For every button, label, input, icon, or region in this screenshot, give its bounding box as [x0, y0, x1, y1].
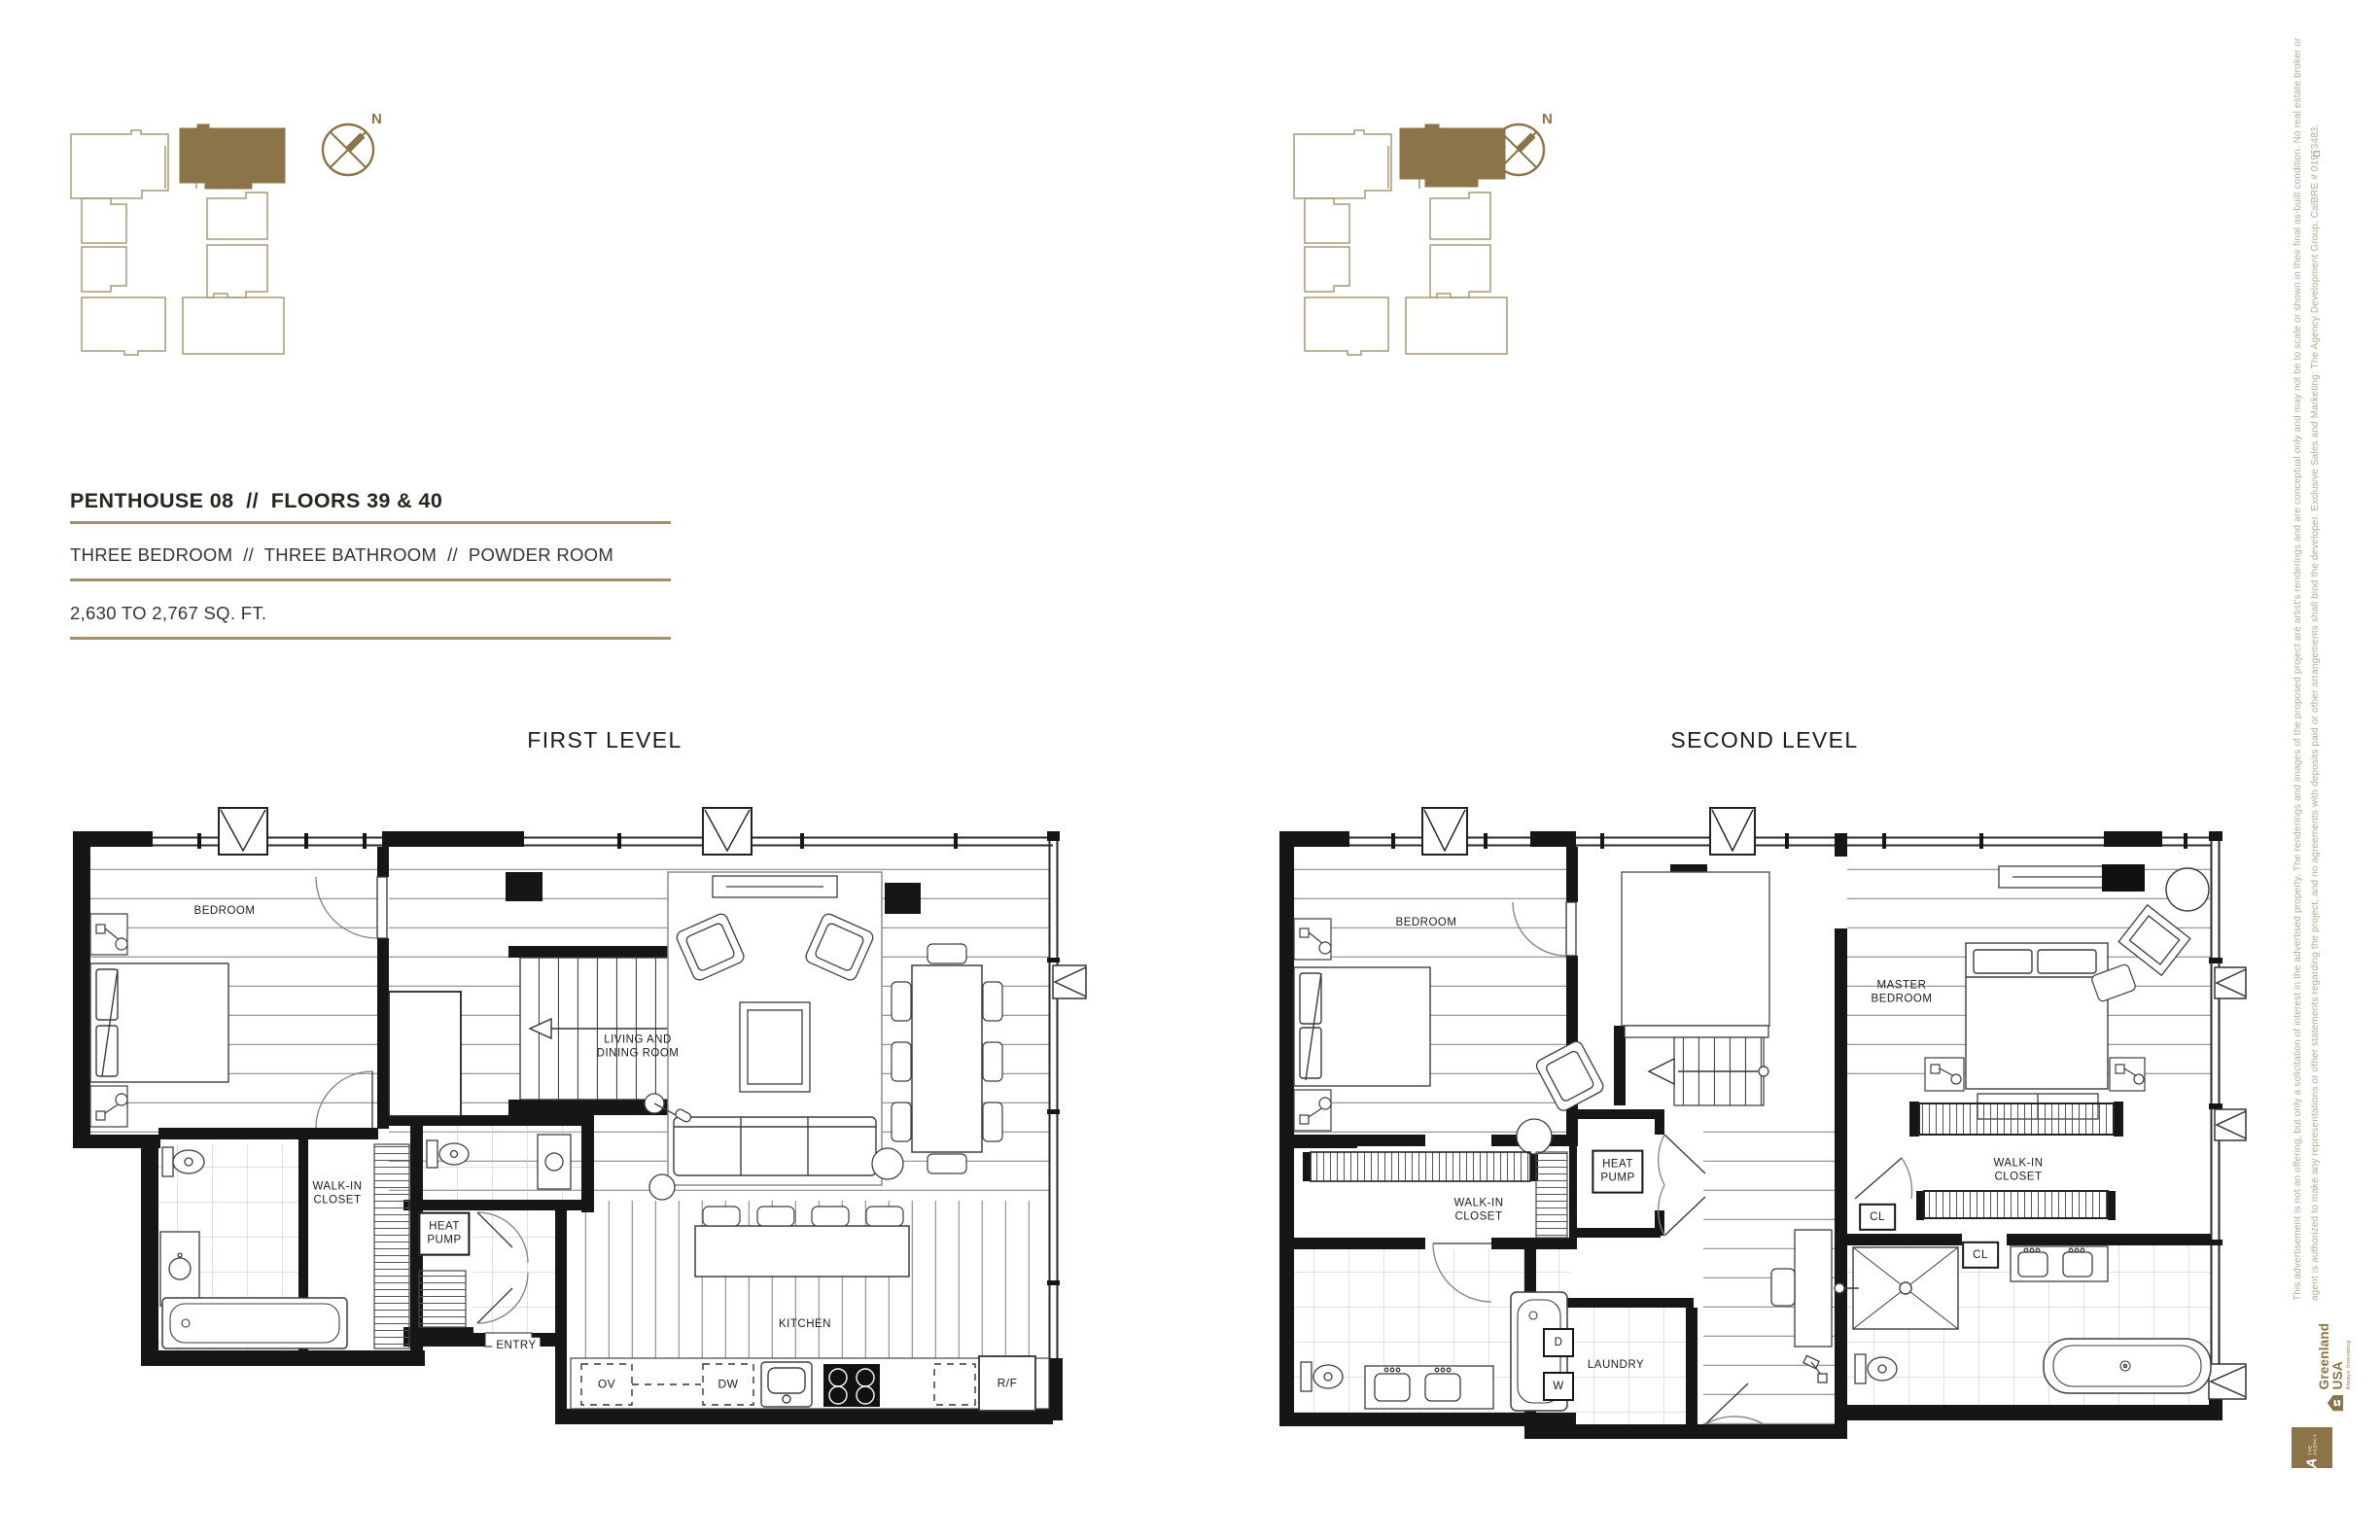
appliance-label-refrigerator: R/F — [997, 1377, 1018, 1391]
appliance-label-oven: OV — [598, 1378, 615, 1392]
the-agency-logo: A THE AGENCY — [2292, 1427, 2332, 1468]
window-well-icon — [2215, 1109, 2246, 1140]
window-well-icon — [2215, 967, 2246, 998]
side-table — [649, 1174, 675, 1200]
skylight-icon — [1422, 808, 1467, 855]
unit-outline — [82, 297, 165, 355]
agency-monogram: A — [2305, 1457, 2320, 1468]
pouf — [1517, 1119, 1552, 1154]
area-rule — [70, 637, 671, 640]
vanity-sink — [160, 1232, 199, 1306]
skylight-icon — [1710, 808, 1755, 855]
vanity-sink — [538, 1135, 571, 1189]
nightstand — [1294, 1090, 1331, 1131]
wall — [2104, 831, 2162, 847]
coat-closet-rod — [419, 1271, 466, 1327]
wall — [382, 831, 524, 847]
side-table — [872, 1148, 903, 1179]
greenland-usa-tagline: Always Innovating — [2346, 1316, 2352, 1389]
compass-north-label: N — [1542, 111, 1553, 127]
master-bed — [1966, 943, 2108, 1089]
dining-table — [912, 965, 982, 1152]
window-well-icon — [1053, 965, 1086, 998]
room-label-heat-pump: HEAT PUMP — [1592, 1150, 1643, 1194]
window-well-icon — [2209, 1364, 2246, 1399]
features-rule — [70, 578, 671, 581]
toilet — [1301, 1362, 1343, 1391]
nightstand — [2110, 1058, 2145, 1091]
skylight-icon — [219, 808, 267, 855]
right-window-wall — [1050, 833, 1058, 1413]
wall — [1530, 831, 1576, 847]
bed — [90, 963, 228, 1082]
room-label-living-dining: LIVING AND DINING ROOM — [597, 1033, 680, 1062]
closet-rod — [374, 1144, 409, 1348]
unit-outline — [1305, 198, 1349, 243]
coffee-table — [740, 1002, 810, 1092]
agency-name: THE AGENCY — [2307, 1427, 2317, 1454]
shower — [1835, 1247, 1958, 1329]
bathtub — [162, 1298, 347, 1348]
unit-features: THREE BEDROOM // THREE BATHROOM // POWDE… — [70, 544, 613, 566]
appliance-label-dishwasher: DW — [718, 1378, 739, 1392]
page-title: PENTHOUSE 08 // FLOORS 39 & 40 — [70, 489, 442, 513]
double-vanity — [1365, 1366, 1493, 1409]
round-mirror — [2166, 868, 2209, 911]
window-mullions — [197, 833, 958, 849]
unit-outline — [71, 130, 168, 198]
legal-disclaimer-line1: This advertisement is not an offering, b… — [2292, 38, 2303, 1301]
unit-outline — [1406, 294, 1507, 354]
room-label-walk-in-closet-left: WALK-IN CLOSET — [1454, 1197, 1504, 1225]
nightstand — [1925, 1058, 1964, 1091]
stairs — [1649, 1037, 1768, 1105]
kitchen-island — [695, 1226, 909, 1277]
nightstand — [90, 1086, 127, 1127]
second-level-title: SECOND LEVEL — [1670, 727, 1858, 753]
stair-landing — [1625, 1026, 1768, 1037]
room-label-walk-in-closet: WALK-IN CLOSET — [313, 1180, 363, 1208]
unit-outline — [207, 192, 267, 239]
sofa — [674, 1117, 876, 1175]
unit-outline — [1430, 245, 1490, 297]
room-label-laundry: LAUNDRY — [1588, 1358, 1644, 1372]
closet-rod — [1924, 1191, 2108, 1218]
column — [2102, 864, 2145, 892]
greenland-usa-logo: Greenland USA Always Innovating — [2318, 1316, 2352, 1412]
cooktop — [823, 1364, 880, 1407]
closet-label-lower: CL — [1962, 1242, 1999, 1269]
closet-rod — [1536, 1152, 1567, 1238]
room-label-walk-in-closet-right: WALK-IN CLOSET — [1994, 1157, 2044, 1185]
unit-outline — [82, 247, 126, 292]
unit-area: 2,630 TO 2,767 SQ. FT. — [70, 603, 266, 624]
heat-pump-doors — [1659, 1135, 1705, 1236]
first-level-floorplan — [73, 783, 1089, 1439]
top-window-wall — [151, 838, 1053, 846]
closet-rod — [1311, 1152, 1530, 1181]
window-mullions — [1391, 833, 2187, 849]
kitchen-sink — [761, 1362, 812, 1407]
skylight-icon — [703, 808, 752, 855]
unit-outline — [1294, 130, 1391, 198]
key-plan-first-level — [68, 122, 294, 360]
room-label-heat-pump: HEAT PUMP — [418, 1212, 470, 1256]
toilet — [1855, 1354, 1897, 1383]
closet-label-upper: CL — [1859, 1204, 1896, 1231]
room-label-master-bedroom: MASTER BEDROOM — [1872, 979, 1933, 1007]
nightstand — [1294, 919, 1331, 960]
entry-floor — [473, 1203, 555, 1333]
appliance-label-dryer: D — [1543, 1328, 1574, 1357]
unit-outline — [1430, 192, 1490, 239]
greenland-usa-name: Greenland USA — [2318, 1316, 2344, 1389]
legal-disclaimer-line2: agent is authorized to make any represen… — [2310, 124, 2321, 1301]
first-level-title: FIRST LEVEL — [527, 727, 682, 753]
unit-outline — [82, 198, 126, 243]
room-label-bedroom: BEDROOM — [194, 904, 256, 918]
unit-outline — [183, 294, 284, 354]
closet-door — [1855, 1158, 1912, 1199]
floorplan-brochure-page: N N PENTHOUSE 08 // FLOORS 39 & 40 THREE… — [0, 0, 2380, 1540]
title-rule — [70, 521, 671, 524]
hall-closet — [389, 992, 461, 1116]
equal-housing-icon: ⌂ — [2308, 150, 2323, 157]
compass-north-label: N — [371, 111, 382, 127]
bed — [1294, 967, 1430, 1086]
media-console — [713, 876, 837, 897]
room-label-bedroom: BEDROOM — [1396, 916, 1457, 929]
second-level-floorplan — [1279, 783, 2252, 1439]
double-vanity — [2011, 1246, 2108, 1281]
room-label-kitchen: KITCHEN — [779, 1317, 831, 1331]
nightstand — [90, 914, 127, 955]
room-label-entry: ENTRY — [492, 1338, 540, 1353]
unit-outline — [207, 245, 267, 297]
closet-rod — [1919, 1103, 2114, 1135]
greenland-house-icon — [2324, 1394, 2347, 1412]
unit-outline — [1305, 247, 1349, 292]
unit-outline — [1305, 297, 1388, 355]
freestanding-tub — [2044, 1339, 2211, 1393]
appliance-label-washer: W — [1543, 1372, 1574, 1401]
highlighted-unit — [180, 124, 285, 189]
double-height-void — [1622, 872, 1769, 1026]
